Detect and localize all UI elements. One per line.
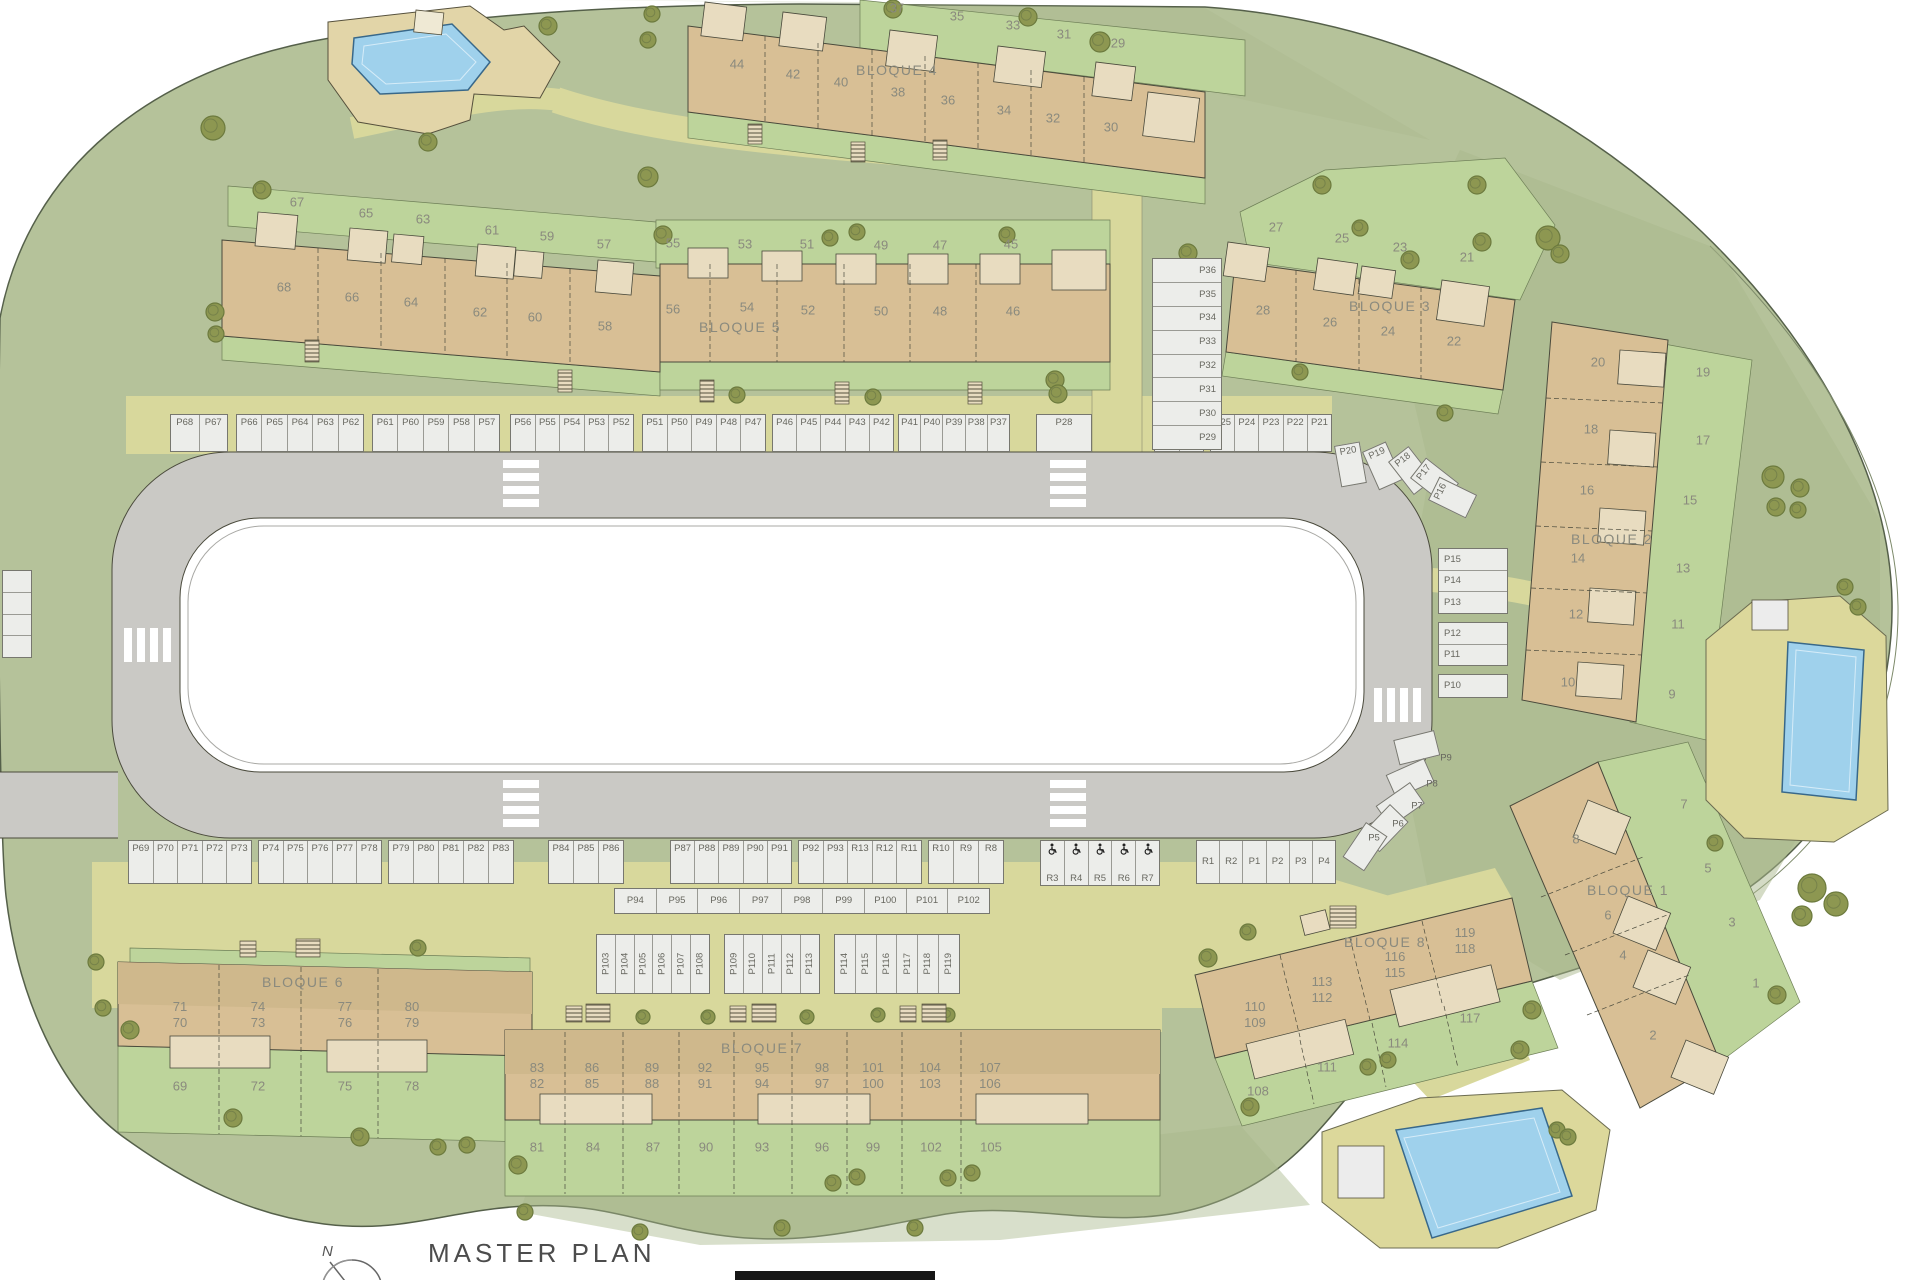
accessible-icon (1143, 843, 1153, 855)
parking-stall-label: P80 (418, 844, 435, 854)
parking-group: P46P45P44P43P42 (772, 414, 894, 452)
parking-stall: P12 (1439, 623, 1507, 644)
unit-label: 112 (1312, 990, 1333, 1006)
parking-stall-label: P116 (882, 953, 892, 974)
parking-stall-label: P55 (539, 418, 556, 428)
unit-label: 21 (1460, 250, 1474, 265)
parking-stall-label: P63 (317, 418, 334, 428)
parking-group: P56P55P54P53P52 (510, 414, 634, 452)
unit-pair-label: 116115 (1385, 949, 1406, 981)
unit-label: 61 (485, 223, 499, 238)
parking-stall: P50 (667, 415, 692, 451)
accessible-icon (1071, 843, 1081, 855)
parking-stall: P101 (906, 889, 948, 913)
parking-stall: P47 (740, 415, 765, 451)
block-label: BLOQUE 5 (699, 319, 781, 335)
parking-stall: P84 (549, 841, 573, 883)
parking-stall-label: P23 (1263, 418, 1280, 428)
parking-stall: R11 (896, 841, 921, 883)
parking-stall: R5 (1088, 841, 1112, 885)
parking-stall-label: P38 (968, 418, 985, 428)
parking-stall: P35 (1153, 282, 1221, 306)
unit-label: 46 (1006, 304, 1020, 319)
parking-stall: R9 (953, 841, 978, 883)
parking-stall: P57 (474, 415, 499, 451)
unit-label: 20 (1591, 355, 1605, 370)
parking-stall-label: R1 (1202, 857, 1214, 867)
parking-stall-label: P61 (377, 418, 394, 428)
parking-stall-label: R7 (1142, 874, 1154, 884)
unit-label: 23 (1393, 240, 1407, 255)
parking-stall-label: P96 (710, 896, 727, 906)
parking-stall: P21 (1307, 415, 1331, 451)
parking-stall: P49 (691, 415, 716, 451)
parking-stall: P70 (153, 841, 178, 883)
parking-stall: P3 (1289, 841, 1312, 883)
unit-label: 27 (1269, 220, 1283, 235)
block-label: BLOQUE 1 (1587, 882, 1669, 898)
parking-stall: P118 (917, 935, 938, 993)
parking-stall: P102 (947, 889, 989, 913)
parking-stall-label: P107 (676, 953, 686, 975)
parking-stall-label: P119 (944, 953, 954, 974)
parking-stall (3, 592, 31, 614)
parking-stall-label: P14 (1444, 576, 1461, 586)
accessible-icon (1047, 843, 1057, 855)
parking-stall-label: P19 (1367, 446, 1386, 462)
parking-stall: R4 (1064, 841, 1088, 885)
parking-stall-label: P44 (825, 418, 842, 428)
parking-stall-label: P58 (453, 418, 470, 428)
unit-label: 83 (530, 1060, 544, 1076)
unit-label: 79 (405, 1015, 419, 1031)
unit-label: 80 (405, 999, 419, 1015)
parking-stall: P78 (356, 841, 381, 883)
parking-stall-label: P112 (786, 953, 796, 974)
unit-label: 29 (1111, 36, 1125, 51)
unit-label: 34 (997, 103, 1011, 118)
unit-label: 14 (1571, 551, 1585, 566)
parking-stall: P106 (652, 935, 671, 993)
unit-label: 95 (755, 1060, 769, 1076)
parking-stall-label: R5 (1094, 874, 1106, 884)
parking-stall-label: P17 (1415, 463, 1433, 482)
parking-group: R1R2P1P2P3P4 (1196, 840, 1336, 884)
legend-edge (735, 1271, 935, 1280)
block-label: BLOQUE 3 (1349, 298, 1431, 314)
unit-label: 36 (941, 93, 955, 108)
parking-stall: P65 (261, 415, 286, 451)
parking-group: P36P35P34P33P32P31P30P29 (1152, 258, 1222, 450)
garden-unit-label: 69 (173, 1079, 187, 1094)
unit-label: 26 (1323, 315, 1337, 330)
parking-stall: P92 (799, 841, 823, 883)
parking-stall-label: P82 (468, 844, 485, 854)
parking-stall: R1 (1197, 841, 1219, 883)
parking-stall: P72 (202, 841, 227, 883)
parking-stall-label: P36 (1199, 266, 1216, 276)
parking-group: P94P95P96P97P98P99P100P101P102 (614, 888, 990, 914)
parking-stall-label: P34 (1199, 313, 1216, 323)
unit-label: 1 (1752, 976, 1759, 991)
garden-unit-label: 114 (1388, 1036, 1409, 1051)
parking-stall: P73 (226, 841, 251, 883)
parking-stall-label: P88 (698, 844, 715, 854)
parking-stall: P97 (739, 889, 781, 913)
parking-stall-label: P47 (745, 418, 762, 428)
unit-label: 70 (173, 1015, 187, 1031)
parking-group: R10R9R8 (928, 840, 1004, 884)
parking-stall-label: P12 (1444, 629, 1461, 639)
parking-stall-label: P92 (802, 844, 819, 854)
parking-stall: P90 (743, 841, 767, 883)
parking-stall-label: P110 (748, 953, 758, 974)
unit-pair-label: 9291 (698, 1060, 712, 1092)
unit-label: 110 (1244, 999, 1266, 1015)
parking-stall-label: P90 (747, 844, 764, 854)
unit-label: 56 (666, 302, 680, 317)
parking-stall: P51 (643, 415, 667, 451)
parking-stall-label: P24 (1238, 418, 1255, 428)
unit-pair-label: 9594 (755, 1060, 769, 1092)
parking-stall-label: P97 (752, 896, 769, 906)
parking-stall: P39 (942, 415, 964, 451)
parking-stall: P115 (855, 935, 876, 993)
parking-stall: P109 (725, 935, 743, 993)
parking-stall: P93 (823, 841, 848, 883)
unit-label: 89 (645, 1060, 659, 1076)
parking-group: P12P11 (1438, 622, 1508, 666)
parking-stall-label: P60 (402, 418, 419, 428)
accessible-icon (1095, 843, 1105, 855)
parking-stall: P82 (463, 841, 488, 883)
unit-pair-label: 110109 (1244, 999, 1266, 1031)
unit-label: 52 (801, 303, 815, 318)
parking-group (2, 570, 32, 658)
parking-stall: P37 (987, 415, 1009, 451)
parking-stall (3, 614, 31, 636)
parking-stall: P60 (397, 415, 422, 451)
parking-stall-label: P85 (578, 844, 595, 854)
unit-label: 35 (950, 9, 964, 24)
parking-stall: P58 (448, 415, 473, 451)
north-label: N (322, 1243, 333, 1260)
unit-label: 4 (1619, 948, 1626, 963)
block-label: BLOQUE 7 (721, 1040, 803, 1056)
parking-stall: P96 (697, 889, 739, 913)
parking-stall: P68 (171, 415, 199, 451)
unit-pair-label: 104103 (919, 1060, 941, 1092)
parking-stall-label: P102 (958, 896, 980, 906)
unit-label: 104 (919, 1060, 941, 1076)
parking-stall: P80 (413, 841, 438, 883)
parking-stall: P67 (199, 415, 228, 451)
garden-unit-label: 81 (530, 1140, 544, 1155)
unit-label: 48 (933, 304, 947, 319)
unit-label: 92 (698, 1060, 712, 1076)
parking-stall-label: P66 (241, 418, 258, 428)
parking-stall-label: P51 (646, 418, 663, 428)
unit-label: 33 (1006, 18, 1020, 33)
parking-stall: R6 (1111, 841, 1135, 885)
parking-stall-label: P98 (794, 896, 811, 906)
parking-stall-label: P35 (1199, 290, 1216, 300)
parking-stall: P42 (869, 415, 893, 451)
parking-stall-label: P99 (835, 896, 852, 906)
parking-stall-label: P53 (588, 418, 605, 428)
parking-stall: P1 (1242, 841, 1265, 883)
parking-stall: P20 (1334, 441, 1367, 487)
parking-stall: R2 (1219, 841, 1242, 883)
parking-stall-label: P62 (342, 418, 359, 428)
parking-group: R3R4R5R6R7 (1040, 840, 1160, 886)
parking-stall-label: R4 (1070, 874, 1082, 884)
parking-stall: P36 (1153, 259, 1221, 282)
parking-stall-label: P78 (361, 844, 378, 854)
unit-label: 53 (738, 237, 752, 252)
parking-group: P74P75P76P77P78 (258, 840, 382, 884)
unit-label: 49 (874, 238, 888, 253)
parking-stall: P2 (1266, 841, 1289, 883)
unit-label: 98 (815, 1060, 829, 1076)
unit-label: 77 (338, 999, 352, 1015)
parking-stall: P85 (573, 841, 598, 883)
unit-pair-label: 9897 (815, 1060, 829, 1092)
garden-unit-label: 72 (251, 1079, 265, 1094)
unit-label: 37 (890, 1, 904, 16)
parking-stall-label: P118 (923, 953, 933, 974)
parking-stall-label: P45 (800, 418, 817, 428)
parking-stall: P116 (876, 935, 897, 993)
unit-label: 67 (290, 195, 304, 210)
unit-label: 88 (645, 1076, 659, 1092)
parking-stall: P41 (899, 415, 920, 451)
garden-unit-label: 102 (920, 1140, 942, 1155)
parking-stall: P79 (389, 841, 413, 883)
unit-label: 38 (891, 85, 905, 100)
unit-label: 59 (540, 229, 554, 244)
parking-stall: P113 (800, 935, 819, 993)
parking-stall-label: P91 (771, 844, 788, 854)
parking-stall: P10 (1439, 675, 1507, 697)
unit-label: 32 (1046, 111, 1060, 126)
unit-label: 51 (800, 237, 814, 252)
parking-stall: P54 (559, 415, 584, 451)
parking-stall-label: P28 (1056, 418, 1073, 428)
parking-stall-label: R6 (1118, 874, 1130, 884)
parking-stall: P13 (1439, 591, 1507, 613)
parking-stall: R7 (1135, 841, 1159, 885)
unit-pair-label: 8685 (585, 1060, 599, 1092)
parking-stall-label: P5 (1368, 833, 1380, 844)
parking-stall-label: P11 (1444, 650, 1460, 660)
parking-stall-label: P40 (923, 418, 940, 428)
unit-label: 17 (1696, 433, 1710, 448)
parking-stall-label: P105 (639, 953, 649, 975)
parking-stall-label: P87 (674, 844, 691, 854)
parking-stall-label: P3 (1295, 857, 1307, 867)
unit-label: 40 (834, 75, 848, 90)
unit-label: 91 (698, 1076, 712, 1092)
parking-stall-label: P29 (1199, 433, 1216, 443)
parking-stall-label: P18 (1393, 451, 1412, 469)
parking-group: P109P110P111P112P113 (724, 934, 820, 994)
unit-label: 76 (338, 1015, 352, 1031)
unit-label: 116 (1385, 949, 1406, 965)
parking-stall: P119 (938, 935, 959, 993)
parking-group: P69P70P71P72P73 (128, 840, 252, 884)
parking-stall: P117 (896, 935, 917, 993)
parking-group: P68P67 (170, 414, 228, 452)
unit-pair-label: 101100 (862, 1060, 884, 1092)
parking-stall-label: P4 (1318, 857, 1330, 867)
garden-unit-label: 84 (586, 1140, 600, 1155)
parking-stall: R12 (872, 841, 897, 883)
garden-unit-label: 99 (866, 1140, 880, 1155)
parking-stall: P16 (1428, 477, 1477, 519)
parking-stall-label: P54 (564, 418, 581, 428)
unit-label: 13 (1676, 561, 1690, 576)
parking-group: P79P80P81P82P83 (388, 840, 514, 884)
unit-label: 12 (1569, 607, 1583, 622)
parking-stall: R10 (929, 841, 953, 883)
unit-label: 10 (1561, 675, 1575, 690)
parking-group: P10 (1438, 674, 1508, 698)
parking-stall-label: P10 (1444, 681, 1461, 691)
parking-stall-label: P42 (873, 418, 890, 428)
parking-stall-label: P72 (206, 844, 223, 854)
unit-pair-label: 119118 (1455, 925, 1476, 957)
unit-label: 25 (1335, 231, 1349, 246)
north-arrow: N (306, 1238, 396, 1280)
unit-pair-label: 8382 (530, 1060, 544, 1092)
parking-stall: P32 (1153, 354, 1221, 378)
unit-label: 58 (598, 319, 612, 334)
garden-unit-label: 108 (1247, 1084, 1269, 1099)
parking-group: P28 (1036, 414, 1092, 452)
parking-group: P114P115P116P117P118P119 (834, 934, 960, 994)
garden-unit-label: 105 (980, 1140, 1002, 1155)
unit-pair-label: 7473 (251, 999, 265, 1031)
parking-stall-label: P37 (990, 418, 1007, 428)
parking-stall-label: P100 (874, 896, 896, 906)
garden-unit-label: 117 (1460, 1011, 1481, 1026)
parking-stall: P98 (781, 889, 823, 913)
parking-stall-label: P79 (393, 844, 410, 854)
parking-stall-label: P1 (1249, 857, 1261, 867)
parking-stall: P95 (656, 889, 698, 913)
unit-label: 9 (1668, 687, 1675, 702)
parking-stall-label: P75 (287, 844, 304, 854)
parking-stall: P110 (743, 935, 762, 993)
unit-label: 55 (666, 236, 680, 251)
parking-stall-label: P93 (827, 844, 844, 854)
unit-label: 7 (1680, 797, 1687, 812)
unit-label: 45 (1004, 237, 1018, 252)
parking-group: P25P24P23P22P21 (1210, 414, 1332, 452)
parking-stall-label: R2 (1225, 857, 1237, 867)
parking-stall-label: P6 (1392, 819, 1404, 830)
plan-title: MASTER PLAN (428, 1238, 656, 1269)
parking-stall: P89 (718, 841, 742, 883)
parking-stall-label: P114 (840, 953, 850, 974)
unit-pair-label: 7170 (173, 999, 187, 1031)
parking-stall-label: P67 (205, 418, 222, 428)
unit-label: 30 (1104, 120, 1118, 135)
unit-label: 8 (1572, 832, 1579, 847)
parking-stall-label: P101 (916, 896, 938, 906)
block-label: BLOQUE 6 (262, 974, 344, 990)
parking-stall-label: P84 (553, 844, 570, 854)
parking-stall (3, 571, 31, 592)
parking-stall: P62 (338, 415, 363, 451)
unit-label: 62 (473, 305, 487, 320)
unit-label: 82 (530, 1076, 544, 1092)
parking-stall-label: P13 (1444, 598, 1461, 608)
parking-stall: P38 (965, 415, 987, 451)
parking-stall: P91 (767, 841, 791, 883)
unit-label: 101 (862, 1060, 884, 1076)
unit-label: 94 (755, 1076, 769, 1092)
parking-stall: P44 (820, 415, 844, 451)
unit-label: 28 (1256, 303, 1270, 318)
unit-label: 113 (1312, 974, 1333, 990)
unit-label: 115 (1385, 965, 1406, 981)
unit-label: 44 (730, 57, 744, 72)
parking-stall-label: P70 (157, 844, 174, 854)
parking-stall-label: P73 (231, 844, 248, 854)
unit-label: 54 (740, 300, 754, 315)
unit-label: 103 (919, 1076, 941, 1092)
labels-overlay: MASTER PLAN N P68P67P66P65P64P63P62P61P6… (0, 0, 1920, 1280)
parking-stall-label: P113 (805, 953, 815, 974)
unit-label: 18 (1584, 422, 1598, 437)
parking-stall-label: P108 (695, 953, 705, 975)
parking-stall: P111 (762, 935, 781, 993)
parking-group: P103P104P105P106P107P108 (596, 934, 710, 994)
parking-stall-label: P30 (1199, 409, 1216, 419)
parking-stall: P86 (598, 841, 623, 883)
parking-stall: P55 (535, 415, 560, 451)
unit-pair-label: 107106 (979, 1060, 1001, 1092)
unit-label: 86 (585, 1060, 599, 1076)
parking-group: P51P50P49P48P47 (642, 414, 766, 452)
parking-stall-label: P52 (613, 418, 630, 428)
parking-stall-label: P65 (266, 418, 283, 428)
unit-pair-label: 7776 (338, 999, 352, 1031)
parking-stall: P24 (1234, 415, 1258, 451)
parking-stall-label: P21 (1311, 418, 1328, 428)
unit-pair-label: 113112 (1312, 974, 1333, 1006)
unit-label: 50 (874, 304, 888, 319)
unit-label: 97 (815, 1076, 829, 1092)
parking-stall: P40 (920, 415, 942, 451)
parking-stall-label: P59 (428, 418, 445, 428)
parking-stall: P88 (694, 841, 718, 883)
parking-stall: P33 (1153, 330, 1221, 354)
parking-stall-label: R3 (1046, 874, 1058, 884)
parking-stall-label: R13 (851, 844, 868, 854)
unit-label: 63 (416, 212, 430, 227)
garden-unit-label: 78 (405, 1079, 419, 1094)
parking-stall-label: P41 (901, 418, 918, 428)
master-plan-canvas: MASTER PLAN N P68P67P66P65P64P63P62P61P6… (0, 0, 1920, 1280)
unit-label: 42 (786, 67, 800, 82)
unit-label: 24 (1381, 324, 1395, 339)
unit-label: 3 (1728, 915, 1735, 930)
parking-stall: P71 (177, 841, 202, 883)
parking-stall: R8 (978, 841, 1003, 883)
